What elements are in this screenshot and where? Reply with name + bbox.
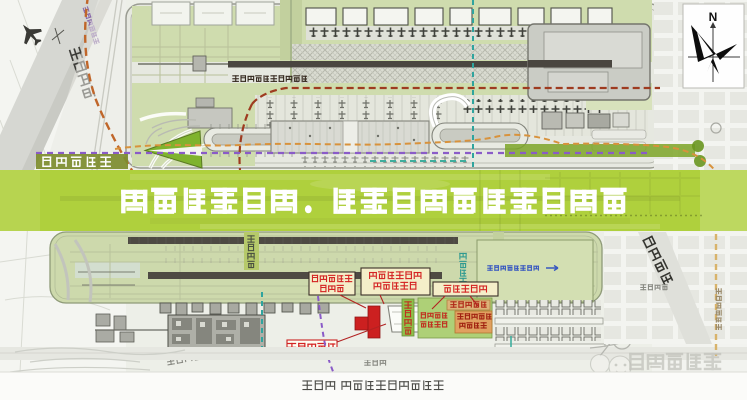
svg-text:N: N xyxy=(709,10,718,24)
